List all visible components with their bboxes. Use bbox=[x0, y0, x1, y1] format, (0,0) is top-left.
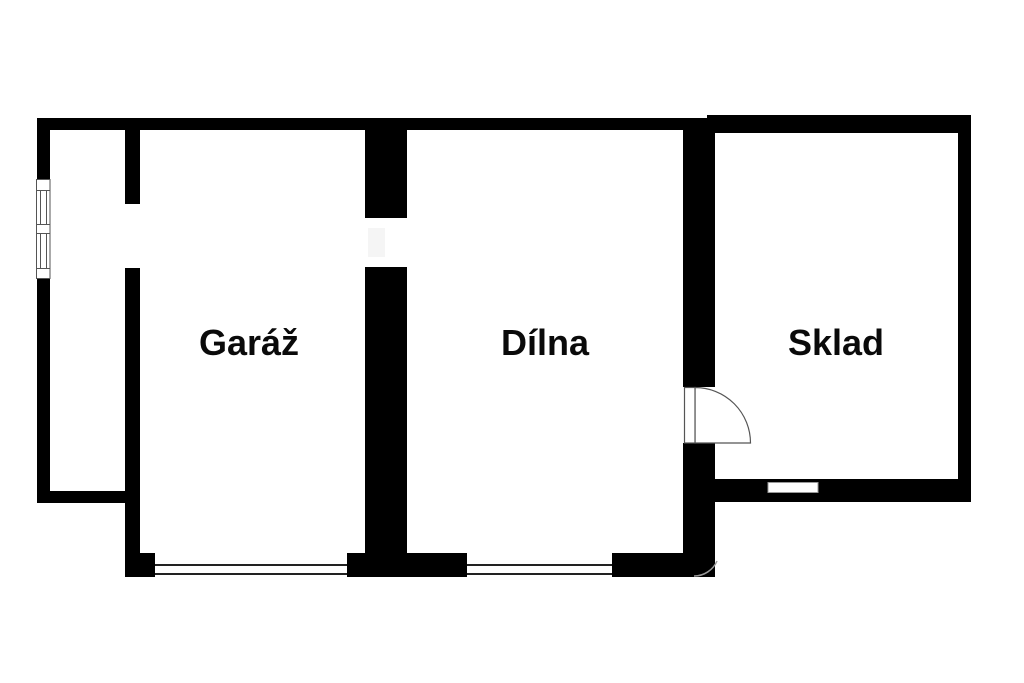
wall-sklad-right bbox=[958, 115, 971, 502]
wall-divider-garage-dilna-upper bbox=[365, 118, 407, 218]
wall-garage-left-lower bbox=[125, 268, 140, 577]
window-icon bbox=[37, 180, 51, 279]
sklad-wall-vent bbox=[768, 483, 818, 493]
room-label-garaz: Garáž bbox=[199, 322, 299, 363]
wall-dilna-bottom-left bbox=[347, 553, 467, 577]
wall-left-outer-upper bbox=[37, 118, 50, 180]
wall-left-outer-lower bbox=[37, 278, 50, 503]
wall-divider-dilna-sklad-upper bbox=[683, 118, 715, 387]
room-label-dilna: Dílna bbox=[501, 322, 590, 363]
room-label-sklad: Sklad bbox=[788, 322, 884, 363]
wall-bottom-left bbox=[37, 491, 140, 503]
wall-opening-smudge bbox=[368, 228, 385, 257]
door-leaf bbox=[685, 388, 696, 444]
wall-divider-garage-dilna-lower bbox=[365, 267, 407, 577]
wall-garage-left-upper bbox=[125, 118, 140, 204]
window-frame bbox=[37, 180, 51, 279]
wall-garage-bottom-corner bbox=[125, 553, 155, 577]
floor-plan-drawing: Garáž Dílna Sklad bbox=[0, 0, 1024, 683]
wall-divider-dilna-sklad-lower bbox=[683, 443, 715, 577]
floor-plan-canvas: Garáž Dílna Sklad bbox=[0, 0, 1024, 683]
wall-sklad-bottom bbox=[715, 479, 971, 502]
wall-top-sklad bbox=[707, 115, 971, 133]
